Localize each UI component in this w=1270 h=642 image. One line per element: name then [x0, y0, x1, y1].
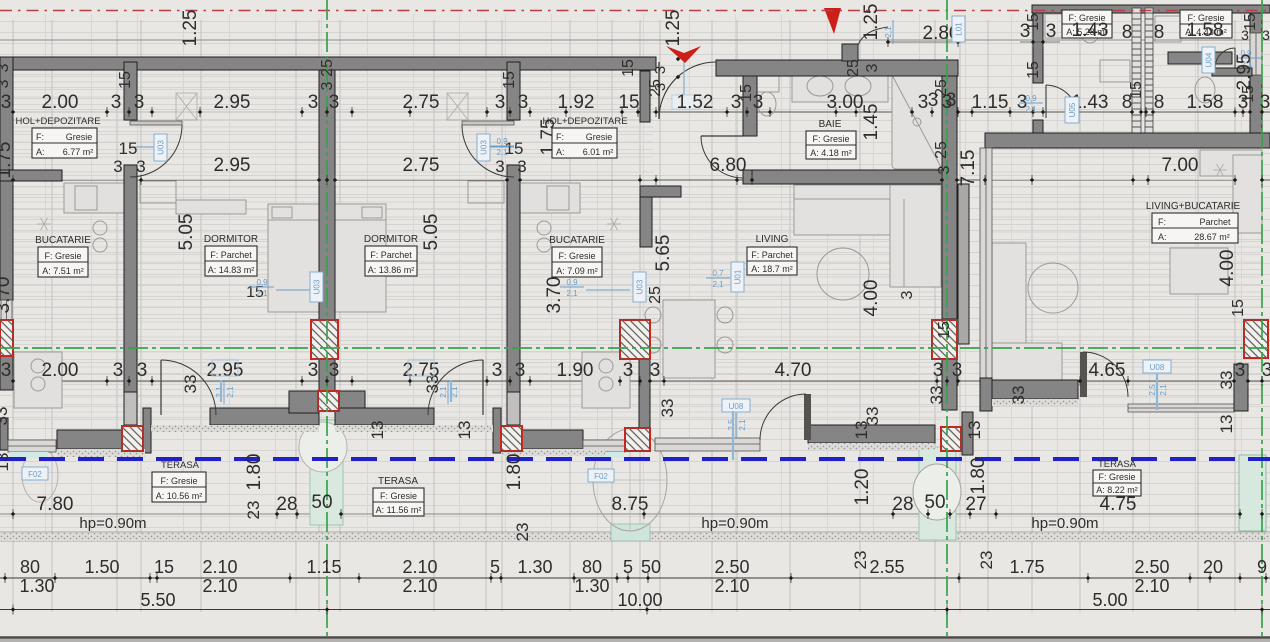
- svg-text:F: Gresie: F: Gresie: [380, 491, 417, 501]
- svg-text:5.00: 5.00: [1092, 590, 1127, 610]
- svg-text:A: 7.09 m²: A: 7.09 m²: [556, 266, 598, 276]
- svg-text:3: 3: [319, 81, 336, 90]
- svg-text:1.75: 1.75: [0, 142, 15, 179]
- svg-text:3: 3: [864, 63, 881, 72]
- svg-text:hp=0.90m: hp=0.90m: [1031, 515, 1098, 532]
- svg-text:8.75: 8.75: [612, 494, 649, 515]
- svg-text:1.30: 1.30: [574, 576, 609, 596]
- svg-text:2,1: 2,1: [226, 386, 235, 398]
- svg-text:3: 3: [113, 157, 122, 176]
- svg-text:2.10: 2.10: [402, 557, 437, 577]
- svg-text:A: 18.7 m²: A: 18.7 m²: [751, 264, 793, 274]
- svg-text:2.00: 2.00: [42, 360, 79, 381]
- svg-text:8: 8: [1122, 22, 1133, 43]
- svg-text:U04: U04: [1205, 52, 1214, 67]
- svg-text:25: 25: [933, 141, 950, 159]
- svg-text:2,1: 2,1: [1025, 105, 1037, 114]
- svg-text:2.75: 2.75: [403, 92, 440, 113]
- svg-text:A:: A:: [1158, 232, 1167, 242]
- svg-text:A: 10.56 m²: A: 10.56 m²: [156, 491, 203, 501]
- svg-text:3: 3: [492, 360, 503, 381]
- svg-text:15: 15: [936, 321, 953, 339]
- svg-text:3: 3: [952, 360, 963, 381]
- svg-text:LIVING+BUCATARIE: LIVING+BUCATARIE: [1146, 201, 1241, 212]
- svg-text:U05: U05: [1068, 102, 1077, 117]
- svg-text:F: Parchet: F: Parchet: [751, 250, 793, 260]
- svg-text:2,1: 2,1: [712, 280, 724, 289]
- svg-text:33: 33: [927, 386, 946, 405]
- svg-text:HOL+DEPOZITARE: HOL+DEPOZITARE: [542, 116, 627, 127]
- svg-text:A: 4.18 m²: A: 4.18 m²: [810, 148, 852, 158]
- svg-text:F02: F02: [28, 470, 42, 479]
- svg-text:3: 3: [111, 92, 122, 113]
- svg-text:3: 3: [1262, 360, 1270, 381]
- svg-text:2,5: 2,5: [1148, 384, 1157, 396]
- svg-text:1.80: 1.80: [244, 454, 265, 491]
- svg-text:1.25: 1.25: [861, 4, 882, 41]
- svg-text:2.75: 2.75: [403, 155, 440, 176]
- svg-text:2.10: 2.10: [402, 576, 437, 596]
- svg-text:3.70: 3.70: [544, 277, 565, 314]
- svg-text:3: 3: [0, 63, 12, 72]
- svg-text:0,9: 0,9: [496, 137, 508, 146]
- svg-text:27: 27: [965, 494, 986, 515]
- svg-text:HOL+DEPOZITARE: HOL+DEPOZITARE: [15, 116, 100, 127]
- svg-text:13: 13: [368, 421, 387, 440]
- svg-text:0,9: 0,9: [1025, 94, 1037, 103]
- svg-text:Parchet: Parchet: [1199, 217, 1231, 227]
- svg-text:33: 33: [1217, 371, 1236, 390]
- svg-text:13: 13: [455, 421, 474, 440]
- svg-text:Gresie: Gresie: [66, 132, 93, 142]
- svg-text:BAIE: BAIE: [819, 119, 842, 130]
- svg-text:1.50: 1.50: [84, 557, 119, 577]
- svg-text:F:: F:: [556, 132, 564, 142]
- svg-text:2.10: 2.10: [202, 557, 237, 577]
- svg-text:33: 33: [658, 399, 677, 418]
- svg-text:5.05: 5.05: [176, 214, 197, 251]
- svg-text:3: 3: [1, 92, 12, 113]
- svg-text:A: 14.83 m²: A: 14.83 m²: [208, 265, 255, 275]
- svg-text:2,1: 2,1: [496, 148, 508, 157]
- svg-text:6.77 m²: 6.77 m²: [63, 147, 94, 157]
- svg-text:1.15: 1.15: [306, 557, 341, 577]
- svg-text:hp=0.90m: hp=0.90m: [701, 515, 768, 532]
- svg-text:U03: U03: [480, 140, 489, 155]
- svg-text:25: 25: [845, 59, 862, 77]
- svg-text:Gresie: Gresie: [586, 132, 613, 142]
- svg-text:10.00: 10.00: [617, 590, 662, 610]
- svg-text:15: 15: [119, 139, 138, 158]
- svg-text:TERASA: TERASA: [161, 460, 200, 471]
- svg-text:15: 15: [501, 71, 518, 89]
- svg-text:7.00: 7.00: [1162, 155, 1199, 176]
- svg-text:1.25: 1.25: [180, 10, 201, 47]
- svg-text:U08: U08: [729, 402, 744, 411]
- svg-text:F: Gresie: F: Gresie: [812, 134, 849, 144]
- svg-text:2,1: 2,1: [256, 289, 268, 298]
- svg-text:F: Gresie: F: Gresie: [1098, 472, 1135, 482]
- svg-text:2,1: 2,1: [884, 26, 893, 38]
- svg-text:hp=0.90m: hp=0.90m: [79, 515, 146, 532]
- svg-text:5: 5: [490, 557, 500, 577]
- svg-text:2.10: 2.10: [202, 576, 237, 596]
- svg-text:13: 13: [852, 421, 871, 440]
- svg-text:U03: U03: [636, 279, 645, 294]
- svg-text:U01: U01: [734, 269, 743, 284]
- svg-text:15: 15: [738, 84, 755, 102]
- svg-text:3: 3: [933, 360, 944, 381]
- svg-text:50: 50: [311, 492, 332, 513]
- svg-text:3: 3: [1, 360, 12, 381]
- svg-text:3: 3: [0, 79, 12, 88]
- svg-text:3: 3: [899, 290, 916, 299]
- svg-text:23: 23: [977, 551, 996, 570]
- svg-text:15: 15: [1242, 13, 1259, 31]
- svg-text:F:: F:: [1158, 217, 1166, 227]
- svg-text:3: 3: [329, 92, 340, 113]
- svg-text:28: 28: [892, 494, 913, 515]
- svg-text:2.95: 2.95: [214, 92, 251, 113]
- svg-text:1.45: 1.45: [861, 104, 882, 141]
- svg-text:A: 13.86 m²: A: 13.86 m²: [368, 265, 415, 275]
- svg-text:2.10: 2.10: [714, 576, 749, 596]
- svg-text:33: 33: [0, 407, 11, 426]
- svg-text:2,1: 2,1: [566, 289, 578, 298]
- svg-text:50: 50: [641, 557, 661, 577]
- svg-text:15: 15: [1240, 85, 1257, 103]
- svg-text:3: 3: [495, 157, 504, 176]
- svg-text:13: 13: [1217, 415, 1236, 434]
- svg-text:F02: F02: [594, 472, 608, 481]
- svg-text:4.00: 4.00: [1217, 250, 1238, 287]
- svg-text:3: 3: [918, 92, 929, 113]
- svg-text:3: 3: [136, 157, 145, 176]
- svg-text:25: 25: [647, 286, 664, 304]
- svg-text:3.00: 3.00: [827, 92, 864, 113]
- svg-text:33: 33: [181, 375, 200, 394]
- svg-text:4.75: 4.75: [1100, 494, 1137, 515]
- svg-text:3: 3: [650, 360, 661, 381]
- svg-text:13: 13: [0, 453, 12, 472]
- svg-text:7.80: 7.80: [37, 494, 74, 515]
- svg-text:4.65: 4.65: [1089, 360, 1126, 381]
- svg-text:3: 3: [1020, 21, 1031, 42]
- svg-text:3: 3: [134, 92, 145, 113]
- svg-text:4.00: 4.00: [861, 280, 882, 317]
- svg-text:6.01 m²: 6.01 m²: [583, 147, 614, 157]
- svg-text:28.67 m²: 28.67 m²: [1194, 232, 1230, 242]
- svg-text:3: 3: [1260, 92, 1270, 113]
- svg-text:F:: F:: [36, 132, 44, 142]
- svg-text:3: 3: [137, 360, 148, 381]
- svg-text:23: 23: [244, 501, 263, 520]
- svg-text:15: 15: [1128, 81, 1145, 99]
- svg-text:3: 3: [495, 92, 506, 113]
- svg-text:8: 8: [1154, 22, 1165, 43]
- svg-text:1.25: 1.25: [663, 10, 684, 47]
- svg-text:15: 15: [117, 71, 134, 89]
- svg-text:1.52: 1.52: [677, 92, 714, 113]
- svg-text:25: 25: [647, 79, 664, 97]
- svg-text:20: 20: [1203, 557, 1223, 577]
- svg-text:3: 3: [113, 360, 124, 381]
- svg-text:3: 3: [308, 92, 319, 113]
- svg-text:2,1: 2,1: [1159, 384, 1168, 396]
- svg-text:1.58: 1.58: [1187, 92, 1224, 113]
- svg-text:3: 3: [928, 90, 939, 111]
- svg-text:3: 3: [329, 360, 340, 381]
- svg-text:1.58: 1.58: [1187, 20, 1224, 41]
- svg-text:1.92: 1.92: [558, 92, 595, 113]
- svg-text:A: 11.56 m²: A: 11.56 m²: [376, 505, 422, 515]
- svg-text:3: 3: [1235, 360, 1246, 381]
- svg-text:U03: U03: [157, 140, 166, 155]
- svg-text:5.65: 5.65: [653, 235, 674, 272]
- svg-text:A:: A:: [36, 147, 45, 157]
- svg-text:2.50: 2.50: [714, 557, 749, 577]
- svg-text:3: 3: [515, 360, 526, 381]
- svg-text:2,1: 2,1: [215, 386, 224, 398]
- svg-text:A:: A:: [556, 147, 565, 157]
- svg-text:2,1: 2,1: [738, 419, 747, 431]
- svg-text:5.50: 5.50: [140, 590, 175, 610]
- svg-text:0,9: 0,9: [256, 278, 268, 287]
- svg-text:TERASA: TERASA: [1098, 459, 1137, 470]
- svg-text:1.30: 1.30: [517, 557, 552, 577]
- svg-text:23: 23: [851, 551, 870, 570]
- svg-text:3: 3: [517, 157, 526, 176]
- svg-text:TERASA: TERASA: [378, 476, 418, 487]
- svg-text:BUCATARIE: BUCATARIE: [549, 235, 605, 246]
- svg-text:F: Gresie: F: Gresie: [44, 251, 81, 261]
- svg-text:1.75: 1.75: [1009, 557, 1044, 577]
- svg-text:28: 28: [276, 494, 297, 515]
- svg-text:3: 3: [652, 66, 669, 74]
- svg-text:9: 9: [1257, 557, 1267, 577]
- svg-text:5.05: 5.05: [421, 214, 442, 251]
- svg-text:0,7: 0,7: [712, 269, 724, 278]
- svg-text:80: 80: [20, 557, 40, 577]
- svg-text:80: 80: [582, 557, 602, 577]
- svg-text:3: 3: [936, 165, 953, 174]
- svg-text:1.80: 1.80: [968, 458, 989, 495]
- svg-text:0,9: 0,9: [566, 278, 578, 287]
- svg-text:2,1: 2,1: [439, 386, 448, 398]
- svg-text:F: Gresie: F: Gresie: [160, 476, 197, 486]
- svg-text:DORMITOR: DORMITOR: [364, 234, 418, 245]
- svg-text:3: 3: [623, 360, 634, 381]
- svg-text:L01: L01: [955, 22, 964, 36]
- svg-text:2.95: 2.95: [214, 155, 251, 176]
- svg-text:1.80: 1.80: [504, 454, 525, 491]
- svg-text:F: Parchet: F: Parchet: [210, 250, 252, 260]
- svg-text:1.15: 1.15: [972, 92, 1009, 113]
- svg-text:4.70: 4.70: [775, 360, 812, 381]
- svg-text:2,5: 2,5: [727, 419, 736, 431]
- svg-text:2.55: 2.55: [869, 557, 904, 577]
- svg-text:25: 25: [319, 59, 336, 77]
- svg-text:F: Parchet: F: Parchet: [370, 250, 412, 260]
- svg-text:13: 13: [965, 421, 984, 440]
- svg-text:6.80: 6.80: [710, 155, 747, 176]
- svg-text:3: 3: [1046, 21, 1057, 42]
- svg-text:2.50: 2.50: [1134, 557, 1169, 577]
- svg-text:1.43: 1.43: [1072, 20, 1109, 41]
- svg-text:LIVING: LIVING: [756, 234, 789, 245]
- svg-text:2.00: 2.00: [42, 92, 79, 113]
- svg-text:15: 15: [620, 59, 637, 77]
- svg-text:3: 3: [308, 360, 319, 381]
- svg-text:15: 15: [1230, 299, 1247, 317]
- svg-text:2.95: 2.95: [1234, 54, 1255, 91]
- svg-text:BUCATARIE: BUCATARIE: [35, 235, 91, 246]
- svg-text:DORMITOR: DORMITOR: [204, 234, 258, 245]
- svg-text:U08: U08: [1150, 363, 1165, 372]
- svg-text:15: 15: [1025, 61, 1042, 79]
- svg-text:A: 8.22 m²: A: 8.22 m²: [1096, 485, 1138, 495]
- svg-text:3: 3: [518, 92, 529, 113]
- svg-text:3: 3: [1262, 27, 1270, 43]
- svg-text:3.70: 3.70: [0, 277, 14, 314]
- svg-text:2.10: 2.10: [1134, 576, 1169, 596]
- svg-text:33: 33: [1009, 386, 1028, 405]
- svg-text:1.20: 1.20: [852, 469, 873, 506]
- svg-text:A: 7.51 m²: A: 7.51 m²: [42, 266, 84, 276]
- svg-text:1.30: 1.30: [19, 576, 54, 596]
- svg-text:F: Gresie: F: Gresie: [558, 251, 595, 261]
- svg-text:7.15: 7.15: [958, 150, 979, 187]
- svg-text:1.90: 1.90: [557, 360, 594, 381]
- svg-text:23: 23: [513, 523, 532, 542]
- svg-text:U03: U03: [313, 279, 322, 294]
- svg-text:3: 3: [946, 90, 957, 111]
- svg-text:8: 8: [1154, 92, 1165, 113]
